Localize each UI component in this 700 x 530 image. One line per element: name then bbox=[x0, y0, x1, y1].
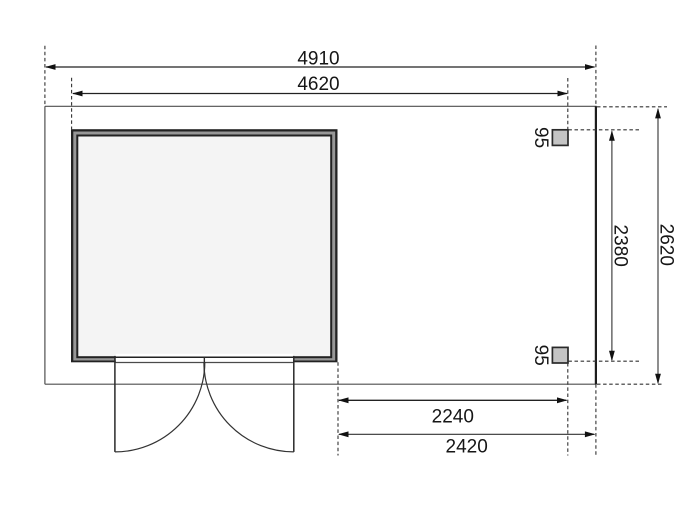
svg-text:4910: 4910 bbox=[297, 48, 339, 69]
svg-text:2380: 2380 bbox=[610, 225, 631, 267]
svg-text:2240: 2240 bbox=[432, 406, 474, 427]
svg-text:4620: 4620 bbox=[297, 74, 339, 95]
svg-text:95: 95 bbox=[530, 345, 551, 366]
svg-text:2420: 2420 bbox=[446, 436, 488, 457]
svg-text:2620: 2620 bbox=[656, 224, 677, 266]
svg-text:95: 95 bbox=[530, 127, 551, 148]
